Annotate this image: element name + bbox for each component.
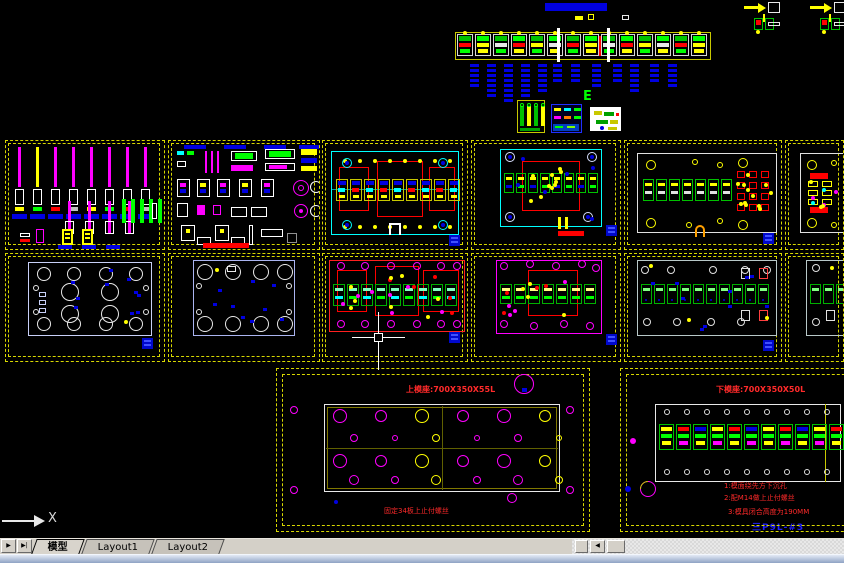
cad-shape xyxy=(586,49,596,53)
dimension-stack-dash xyxy=(571,74,580,77)
cad-shape xyxy=(693,284,704,304)
cad-shape xyxy=(15,207,24,211)
cad-shape xyxy=(58,245,72,249)
cad-shape xyxy=(101,305,119,323)
dimension-stack-dash xyxy=(538,69,547,72)
dimension-stack-dash xyxy=(504,74,513,77)
dimension-stack-dash xyxy=(571,64,580,67)
cad-shape xyxy=(504,173,514,193)
cad-shape xyxy=(526,295,530,299)
cad-shape xyxy=(239,179,252,197)
cad-shape xyxy=(177,161,186,167)
cad-shape xyxy=(558,288,566,291)
dimension-stack-dash xyxy=(571,79,580,82)
cad-shape xyxy=(693,43,705,47)
dimension-stack-dash xyxy=(538,64,547,67)
cad-shape xyxy=(686,222,692,228)
panel-r1c4 xyxy=(471,140,621,250)
cad-shape xyxy=(684,191,691,194)
dimension-stack-dash xyxy=(504,94,513,97)
cad-shape xyxy=(261,179,274,197)
cad-shape xyxy=(250,320,254,323)
panel-content-r1c3 xyxy=(323,141,468,250)
cad-shape xyxy=(558,231,584,236)
panel-r1c6 xyxy=(785,140,844,250)
cad-shape xyxy=(807,218,817,228)
cad-shape xyxy=(692,159,698,165)
cad-shape xyxy=(387,262,395,270)
cad-shape xyxy=(645,191,652,194)
cad-shape xyxy=(739,202,743,206)
cad-shape xyxy=(811,201,815,205)
dimension-stack-dash xyxy=(487,94,496,97)
cad-shape xyxy=(474,435,480,441)
cad-shape xyxy=(516,296,524,299)
cad-shape xyxy=(528,282,532,286)
cad-shape xyxy=(418,225,422,229)
cad-shape xyxy=(749,299,751,301)
cad-shape xyxy=(765,305,769,308)
cad-shape xyxy=(780,427,791,431)
cad-shape xyxy=(213,205,221,215)
command-window-edge[interactable] xyxy=(0,554,844,563)
cad-shape xyxy=(441,223,445,227)
cad-shape xyxy=(263,308,267,311)
cad-shape xyxy=(131,199,135,223)
cad-shape xyxy=(815,441,824,445)
cad-shape xyxy=(180,183,186,187)
dimension-stack-dash xyxy=(630,74,639,77)
cad-shape xyxy=(422,188,429,192)
cad-shape xyxy=(761,193,769,200)
cad-shape xyxy=(723,183,730,186)
cad-shape xyxy=(413,262,421,270)
cad-shape xyxy=(559,170,563,174)
cad-shape xyxy=(518,177,524,180)
cad-shape xyxy=(541,106,545,126)
cad-shape xyxy=(415,454,429,468)
cad-shape xyxy=(450,311,454,315)
dimension-stack-dash xyxy=(521,64,530,67)
strip-detail xyxy=(622,15,629,20)
cad-shape xyxy=(373,225,377,229)
cad-shape xyxy=(513,36,525,41)
panel-content-r1c5 xyxy=(625,141,782,250)
cad-shape xyxy=(710,299,712,301)
cad-shape xyxy=(810,173,828,179)
cad-window: 上模座:700X350X55L 固定34板上止付螺丝 下模座:700X350X5… xyxy=(0,0,844,563)
cad-shape xyxy=(352,181,360,185)
cad-shape xyxy=(366,188,373,192)
cad-shape xyxy=(184,145,206,149)
cad-shape xyxy=(269,151,291,157)
cad-shape xyxy=(377,296,385,299)
dimension-stack-dash xyxy=(630,84,639,87)
cad-shape xyxy=(723,299,725,301)
cad-shape xyxy=(564,116,571,119)
cad-shape xyxy=(585,43,597,47)
arrow-detail-box xyxy=(834,2,844,13)
cad-shape xyxy=(394,181,402,185)
cad-shape xyxy=(590,177,596,180)
dimension-stack-dash xyxy=(613,74,622,77)
tab-scroll-last-button[interactable]: ▶| xyxy=(17,539,32,553)
cad-shape xyxy=(37,317,51,331)
cad-shape xyxy=(477,43,489,47)
cad-shape xyxy=(574,116,581,119)
cad-shape xyxy=(231,207,247,217)
cad-shape xyxy=(765,316,769,320)
cad-shape xyxy=(784,409,790,415)
cad-shape xyxy=(576,173,586,193)
cad-shape xyxy=(345,223,349,227)
cad-shape xyxy=(499,31,503,35)
cad-shape xyxy=(130,312,134,315)
cad-shape xyxy=(84,214,99,219)
cad-shape xyxy=(763,434,774,438)
cad-shape xyxy=(269,165,287,169)
cad-shape xyxy=(349,285,353,289)
cad-shape xyxy=(678,434,689,438)
cad-shape xyxy=(215,268,219,272)
cad-shape xyxy=(578,260,586,268)
cad-shape xyxy=(700,328,704,331)
cad-shape xyxy=(521,287,525,291)
dimension-stack-dash xyxy=(650,69,659,72)
panel-r1c3 xyxy=(322,140,468,250)
cad-shape xyxy=(409,195,415,198)
reference-block-white xyxy=(590,107,623,133)
cad-shape xyxy=(724,409,730,415)
cad-shape xyxy=(129,267,143,281)
cad-shape xyxy=(406,285,410,289)
cad-shape xyxy=(140,199,144,223)
cad-shape xyxy=(290,406,298,414)
cad-shape xyxy=(152,203,157,219)
cad-shape xyxy=(225,316,241,332)
cad-shape xyxy=(51,189,60,205)
cad-shape xyxy=(558,217,561,229)
cad-shape xyxy=(495,36,507,41)
tab-scroll-next-button[interactable]: ▶ xyxy=(1,539,16,553)
cad-shape xyxy=(681,297,685,300)
cad-shape xyxy=(196,283,202,289)
cad-shape xyxy=(543,190,547,194)
cad-shape xyxy=(695,427,706,431)
dimension-stack-dash xyxy=(487,79,496,82)
cad-shape xyxy=(671,191,678,194)
cad-shape xyxy=(745,284,756,304)
cad-shape xyxy=(646,160,656,170)
cad-shape xyxy=(616,113,619,116)
cad-shape xyxy=(253,316,269,332)
cad-shape xyxy=(749,204,757,211)
cad-shape xyxy=(567,126,575,128)
cad-shape xyxy=(143,285,149,291)
panel-content-r2c5 xyxy=(625,254,782,362)
ucs-x-label: X xyxy=(48,512,57,526)
cad-shape xyxy=(144,344,151,346)
cad-shape xyxy=(708,288,715,291)
cad-shape xyxy=(105,283,109,286)
cad-shape xyxy=(780,434,791,438)
cad-shape xyxy=(695,434,706,438)
cad-shape xyxy=(526,260,534,268)
cad-shape xyxy=(500,262,508,270)
panel-content-r2c6 xyxy=(786,254,844,362)
panel-r2c3 xyxy=(322,253,468,362)
cad-shape xyxy=(361,262,369,270)
cad-shape xyxy=(391,296,399,299)
cad-shape xyxy=(764,409,770,415)
cad-shape xyxy=(196,309,202,315)
cad-shape xyxy=(450,188,457,192)
tab-layout2[interactable]: Layout2 xyxy=(152,539,226,554)
cad-shape xyxy=(741,310,750,321)
cad-shape xyxy=(20,233,30,237)
cad-shape xyxy=(621,43,633,47)
cad-shape xyxy=(562,313,566,317)
cad-shape xyxy=(824,409,830,415)
cad-shape xyxy=(830,266,834,270)
cad-shape xyxy=(763,427,774,431)
cad-shape xyxy=(658,191,665,194)
cad-shape xyxy=(419,288,427,291)
cad-shape xyxy=(822,181,832,187)
cad-shape xyxy=(20,239,30,242)
cad-shape xyxy=(437,320,445,328)
cad-shape xyxy=(241,316,245,319)
cad-shape xyxy=(578,185,584,188)
cad-shape xyxy=(220,229,224,233)
cad-shape xyxy=(572,288,580,291)
cad-shape xyxy=(129,317,143,331)
dimension-stack-dash xyxy=(592,74,601,77)
panel-content-r2c2 xyxy=(169,254,320,362)
scrollbar-thumb[interactable] xyxy=(607,540,625,553)
cad-shape xyxy=(90,147,93,187)
arrow-detail xyxy=(744,6,758,9)
cad-shape xyxy=(433,159,437,163)
cad-shape xyxy=(729,434,740,438)
cad-shape xyxy=(286,309,292,315)
dimension-stack-dash xyxy=(504,99,513,102)
cad-shape xyxy=(608,127,617,130)
cad-shape xyxy=(654,284,665,304)
dimension-stack-dash xyxy=(521,74,530,77)
panel-r2c5 xyxy=(624,253,782,362)
cad-shape xyxy=(590,217,594,221)
cad-shape xyxy=(177,179,190,197)
e-marker-label: E xyxy=(583,90,592,104)
cad-shape xyxy=(105,221,114,234)
cad-shape xyxy=(460,49,470,53)
crosshair-pickbox xyxy=(374,333,383,342)
cad-shape xyxy=(231,165,253,171)
cad-shape xyxy=(826,310,835,321)
cad-shape xyxy=(703,325,707,328)
cad-shape xyxy=(673,318,681,326)
cad-shape xyxy=(534,106,538,126)
dimension-stack-dash xyxy=(630,89,639,92)
tab-model[interactable]: 模型 xyxy=(31,539,84,554)
cad-shape xyxy=(235,153,253,159)
cad-shape xyxy=(584,284,596,304)
strip-detail xyxy=(588,14,594,20)
cad-shape xyxy=(662,441,671,445)
cad-shape xyxy=(415,409,429,423)
cad-shape xyxy=(567,43,579,47)
dimension-stack-dash xyxy=(668,64,677,67)
cad-shape xyxy=(431,475,441,485)
cad-shape xyxy=(764,469,770,475)
cad-shape xyxy=(85,233,90,235)
cad-shape xyxy=(338,181,346,185)
model-space-canvas[interactable]: 上模座:700X350X55L 固定34板上止付螺丝 下模座:700X350X5… xyxy=(0,0,844,538)
dimension-stack-dash xyxy=(470,64,479,67)
cad-shape xyxy=(497,409,511,423)
cad-shape xyxy=(287,233,297,243)
cad-shape xyxy=(326,448,558,449)
cad-shape xyxy=(522,388,527,392)
cad-shape xyxy=(604,112,614,116)
cad-shape xyxy=(657,43,669,47)
cad-shape xyxy=(831,222,837,228)
dimension-stack-dash xyxy=(553,69,562,72)
cad-shape xyxy=(447,288,455,291)
cad-shape xyxy=(812,318,820,326)
cad-shape xyxy=(361,320,369,328)
horizontal-scrollbar[interactable]: ◀ xyxy=(572,539,844,554)
cad-shape xyxy=(762,299,764,301)
panel-content-r1c6 xyxy=(786,141,844,250)
cad-shape xyxy=(723,191,730,194)
cad-shape xyxy=(641,266,649,274)
cad-shape xyxy=(217,179,230,197)
cad-shape xyxy=(763,14,765,22)
cad-shape xyxy=(588,173,598,193)
cad-shape xyxy=(85,237,90,239)
panel-r2c4 xyxy=(471,253,621,362)
cad-shape xyxy=(745,276,749,279)
cad-shape xyxy=(804,409,810,415)
cad-shape xyxy=(768,22,780,26)
cad-shape xyxy=(251,280,255,283)
cad-shape xyxy=(124,320,128,324)
dimension-stack-dash xyxy=(592,64,601,67)
dimension-stack-dash xyxy=(521,79,530,82)
cad-shape xyxy=(643,31,647,35)
cad-shape xyxy=(299,209,303,213)
cad-shape xyxy=(495,43,507,47)
cad-shape xyxy=(834,22,844,26)
cad-shape xyxy=(459,36,471,41)
cad-shape xyxy=(838,288,844,291)
cad-shape xyxy=(82,245,96,249)
cad-shape xyxy=(261,229,283,237)
cad-shape xyxy=(451,237,458,239)
cad-shape xyxy=(831,434,842,438)
scrollbar-spacer[interactable] xyxy=(575,540,588,553)
cad-shape xyxy=(433,225,437,229)
cad-shape xyxy=(707,318,715,326)
cad-shape xyxy=(101,283,119,301)
dimension-stack-dash xyxy=(504,89,513,92)
cad-shape xyxy=(224,145,246,149)
cad-shape xyxy=(697,299,699,301)
cad-shape xyxy=(556,435,562,441)
cad-shape xyxy=(671,183,678,186)
cad-shape xyxy=(608,340,615,342)
cad-shape xyxy=(589,31,593,35)
cad-shape xyxy=(812,288,819,291)
tab-layout1[interactable]: Layout1 xyxy=(81,539,155,554)
dimension-stack-dash xyxy=(504,79,513,82)
scrollbar-left-button[interactable]: ◀ xyxy=(590,540,605,553)
cad-shape xyxy=(389,276,393,280)
cad-shape xyxy=(645,183,652,186)
cad-shape xyxy=(334,500,338,504)
panel-content-r2c1 xyxy=(6,254,165,362)
cad-shape xyxy=(213,303,217,306)
cad-shape xyxy=(197,205,205,215)
cad-shape xyxy=(33,207,42,211)
cad-shape xyxy=(531,43,543,47)
cad-shape xyxy=(158,199,162,223)
cad-shape xyxy=(730,441,739,445)
panel-content-r2c4 xyxy=(472,254,621,362)
cad-shape xyxy=(451,334,458,336)
cad-shape xyxy=(337,262,345,270)
dimension-stack-dash xyxy=(668,84,677,87)
cad-shape xyxy=(651,282,655,285)
cad-shape xyxy=(643,318,651,326)
dimension-stack-dash xyxy=(487,84,496,87)
cad-shape xyxy=(737,171,745,178)
cad-shape xyxy=(51,207,60,211)
cad-shape xyxy=(684,469,690,475)
cad-shape xyxy=(608,336,615,338)
cad-shape xyxy=(520,106,524,126)
cad-shape xyxy=(451,195,457,198)
panel-content-r1c2 xyxy=(169,141,320,250)
cad-shape xyxy=(756,30,760,34)
cad-shape xyxy=(675,36,687,41)
cad-shape xyxy=(335,296,343,299)
dimension-stack-dash xyxy=(538,74,547,77)
cad-shape xyxy=(747,441,756,445)
cad-shape xyxy=(220,189,226,193)
dimension-stack-dash xyxy=(668,74,677,77)
cad-shape xyxy=(453,320,461,328)
cad-shape xyxy=(560,320,568,328)
upper-die-drawing xyxy=(276,368,592,534)
cad-shape xyxy=(451,241,458,243)
dimension-stack-dash xyxy=(668,79,677,82)
cad-shape xyxy=(535,31,539,35)
cad-shape xyxy=(177,203,188,217)
cad-shape xyxy=(625,486,631,492)
dimension-stack-dash xyxy=(504,64,513,67)
cad-shape xyxy=(74,306,78,309)
cad-shape xyxy=(457,410,469,422)
cad-shape xyxy=(418,159,422,163)
cad-shape xyxy=(734,288,741,291)
cad-shape xyxy=(144,340,151,342)
cad-shape xyxy=(732,284,743,304)
cad-shape xyxy=(695,225,705,237)
cad-shape xyxy=(809,180,813,184)
